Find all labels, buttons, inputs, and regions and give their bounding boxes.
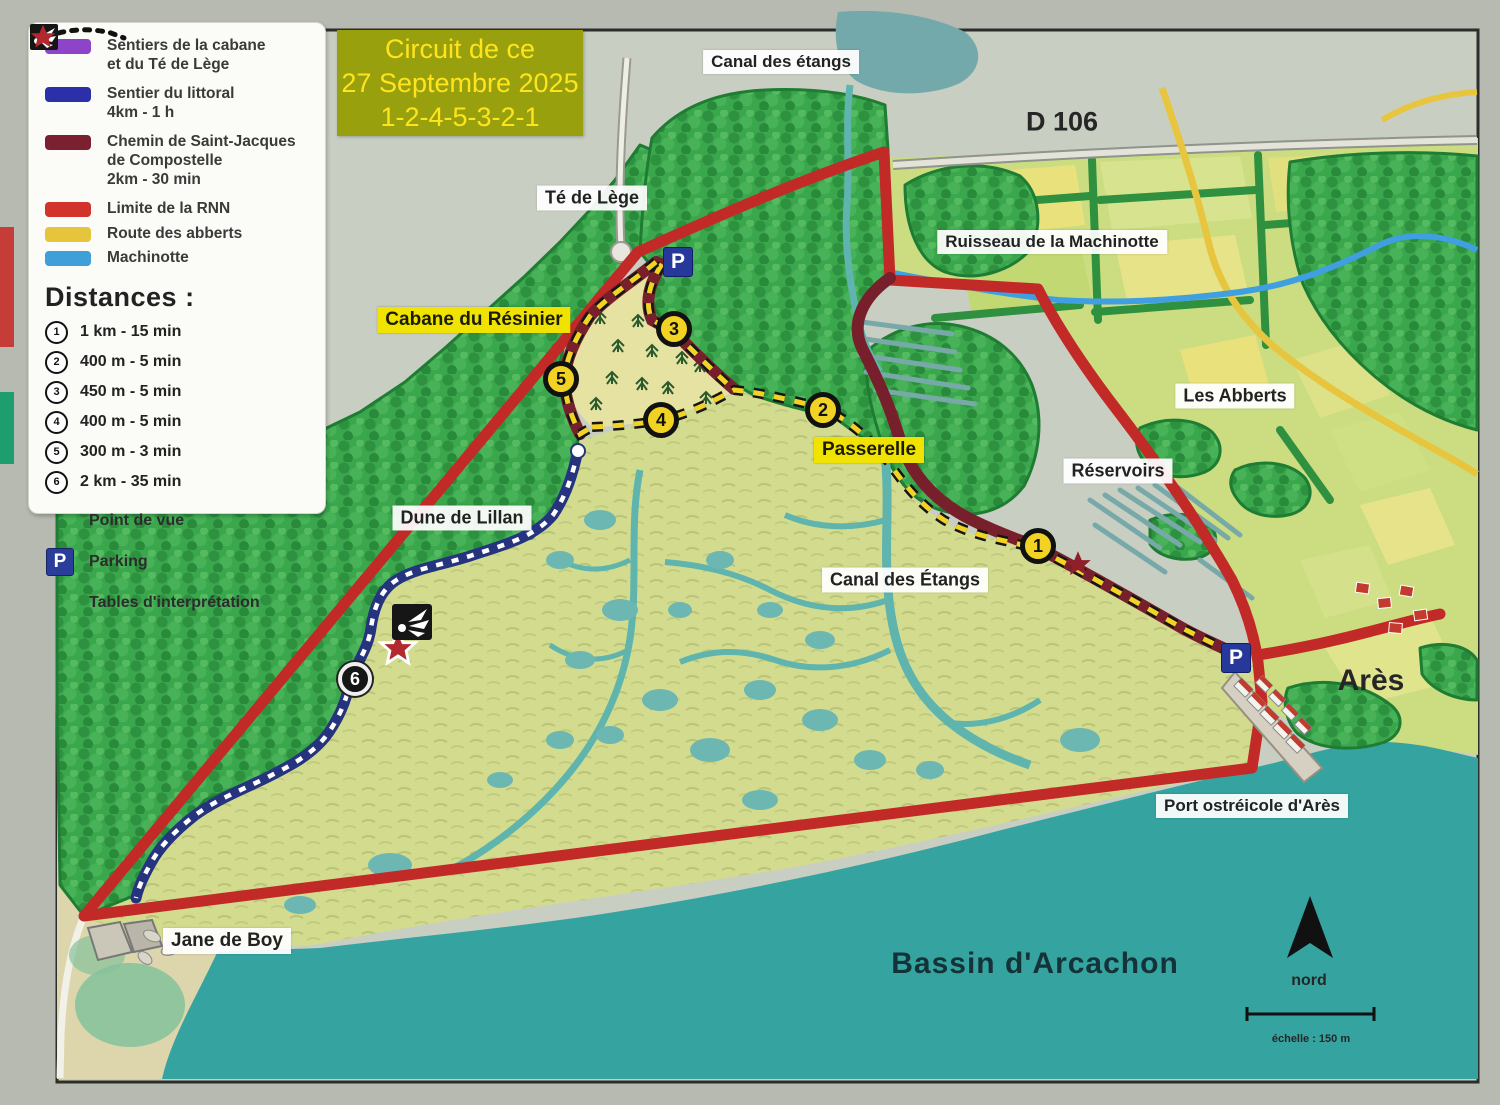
viewpoint-icon	[392, 604, 432, 640]
legend-trail-row: Sentier du littoral 4km - 1 h	[45, 85, 313, 122]
distance-label: 300 m - 3 min	[80, 443, 181, 461]
distance-row: 2 400 m - 5 min	[45, 351, 313, 374]
distances-heading: Distances :	[45, 282, 313, 313]
distance-label: 1 km - 15 min	[80, 323, 181, 341]
label-ruisseau-machinotte: Ruisseau de la Machinotte	[937, 230, 1167, 254]
photo-edge-green-strip	[0, 392, 14, 464]
distance-stop-number: 3	[45, 381, 68, 404]
distance-row: 5 300 m - 3 min	[45, 441, 313, 464]
label-ares: Arès	[1338, 664, 1405, 698]
stop-marker-6: 6	[338, 662, 372, 696]
label-les-abberts: Les Abberts	[1175, 384, 1294, 409]
stop-marker-4: 4	[643, 402, 679, 438]
distance-stop-number: 4	[45, 411, 68, 434]
distance-stop-number: 1	[45, 321, 68, 344]
distance-label: 2 km - 35 min	[80, 473, 181, 491]
stop-marker-3: 3	[656, 311, 692, 347]
label-cabane-du-resinier: Cabane du Résinier	[377, 307, 570, 333]
label-passerelle: Passerelle	[814, 437, 924, 463]
distance-row: 3 450 m - 5 min	[45, 381, 313, 404]
legend-trail-row: Limite de la RNN	[45, 200, 313, 219]
trail-label: Sentiers de la cabane et du Té de Lège	[107, 37, 266, 74]
label-canal-des-etangs-nord: Canal des étangs	[703, 50, 859, 74]
trail-map-panel-photo: Sentiers de la cabane et du Té de Lège S…	[0, 0, 1500, 1105]
legend-panel: Sentiers de la cabane et du Té de Lège S…	[28, 22, 326, 514]
symbol-label: Point de vue	[89, 512, 184, 530]
parking-icon: P	[46, 548, 74, 576]
littoral-start-dot	[571, 444, 585, 458]
stop-marker-1: 1	[1020, 528, 1056, 564]
distance-stop-number: 5	[45, 441, 68, 464]
label-d106: D 106	[1026, 107, 1098, 138]
stop-marker-2: 2	[805, 392, 841, 428]
label-port-ostreicole: Port ostréicole d'Arès	[1156, 794, 1348, 818]
label-nord: nord	[1291, 972, 1327, 990]
distance-stop-number: 2	[45, 351, 68, 374]
trail-swatch-blue	[45, 87, 91, 102]
stop-marker-5: 5	[543, 361, 579, 397]
label-dune-de-lillan: Dune de Lillan	[392, 506, 531, 531]
photo-edge-red-strip	[0, 227, 14, 347]
distance-label: 400 m - 5 min	[80, 413, 181, 431]
viewpoint-icon	[45, 507, 75, 535]
distance-row: 4 400 m - 5 min	[45, 411, 313, 434]
symbol-row-tables: Tables d'interprétation	[45, 589, 313, 617]
label-te-de-lege: Té de Lège	[537, 186, 647, 211]
circuit-title-box: Circuit de ce 27 Septembre 2025 1-2-4-5-…	[337, 30, 583, 136]
trail-swatch-lightblue	[45, 251, 91, 266]
label-jane-de-boy: Jane de Boy	[163, 928, 291, 954]
symbol-row-parking: P Parking	[45, 548, 313, 576]
trail-label: Sentier du littoral 4km - 1 h	[107, 85, 234, 122]
trail-swatch-maroon	[45, 135, 91, 150]
distances-title: Distances :	[45, 282, 195, 313]
distance-row: 6 2 km - 35 min	[45, 471, 313, 494]
label-canal-des-etangs: Canal des Étangs	[822, 568, 988, 593]
distance-row: 1 1 km - 15 min	[45, 321, 313, 344]
trail-label: Machinotte	[107, 249, 189, 268]
distance-stop-number: 6	[45, 471, 68, 494]
symbol-label: Tables d'interprétation	[89, 594, 260, 612]
symbol-row-viewpoint: Point de vue	[45, 507, 313, 535]
symbol-label: Parking	[89, 553, 148, 571]
legend-trail-row: Chemin de Saint-Jacques de Compostelle 2…	[45, 133, 313, 189]
circuit-title-line3: 1-2-4-5-3-2-1	[337, 100, 583, 134]
label-bassin-arcachon: Bassin d'Arcachon	[891, 947, 1179, 981]
label-echelle: échelle : 150 m	[1272, 1033, 1350, 1045]
trail-label: Limite de la RNN	[107, 200, 230, 219]
parking-marker-te-de-lege: P	[663, 247, 693, 277]
distance-label: 400 m - 5 min	[80, 353, 181, 371]
star-icon	[45, 589, 75, 617]
trail-label: Chemin de Saint-Jacques de Compostelle 2…	[107, 133, 296, 189]
label-reservoirs: Réservoirs	[1063, 459, 1172, 484]
legend-trail-row: Route des abberts	[45, 225, 313, 244]
trail-swatch-red	[45, 202, 91, 217]
parking-marker-ares: P	[1221, 643, 1251, 673]
trail-label: Route des abberts	[107, 225, 242, 244]
trail-swatch-yellow	[45, 227, 91, 242]
circuit-title-line1: Circuit de ce	[337, 32, 583, 66]
distance-label: 450 m - 5 min	[80, 383, 181, 401]
legend-trail-row: Machinotte	[45, 249, 313, 268]
circuit-title-line2: 27 Septembre 2025	[337, 66, 583, 100]
